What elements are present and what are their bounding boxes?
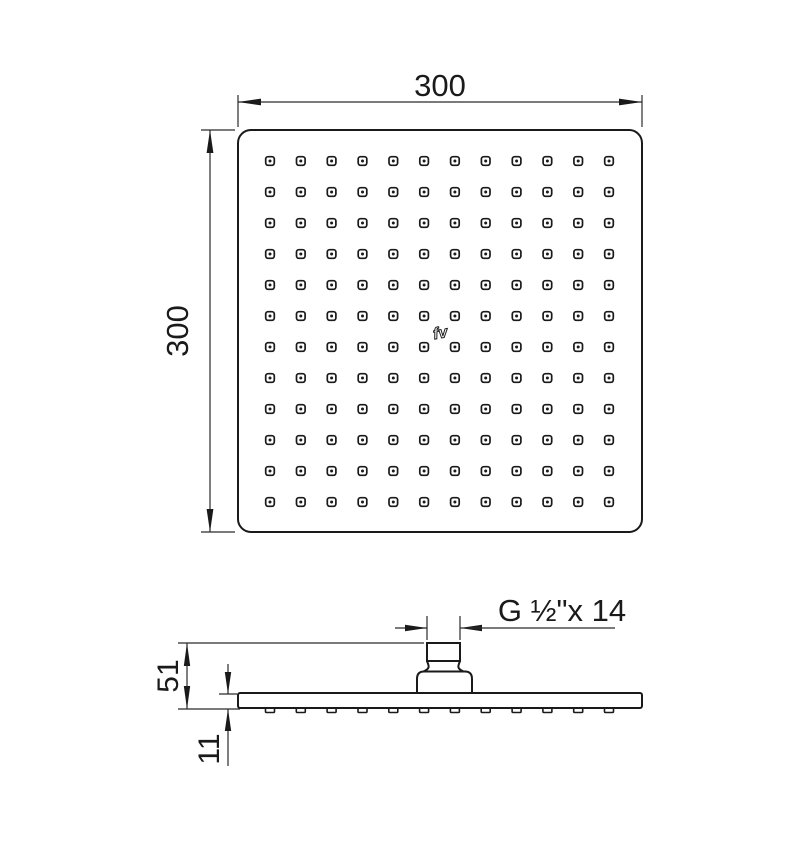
nozzle-dot	[299, 253, 302, 256]
nozzle-dot	[546, 346, 549, 349]
nozzle-dot	[423, 501, 426, 504]
nozzle-dot	[269, 253, 272, 256]
nozzle-dot	[608, 222, 611, 225]
nozzle-dot	[546, 160, 549, 163]
connector-neck-right	[458, 661, 463, 672]
nozzle-dot	[269, 160, 272, 163]
nozzle-dot	[269, 439, 272, 442]
nozzle-dot	[608, 160, 611, 163]
nozzle-dot	[330, 191, 333, 194]
nozzle-dot	[515, 315, 518, 318]
nozzle-dot	[515, 160, 518, 163]
nozzle-dot	[577, 222, 580, 225]
nozzle-dot	[484, 439, 487, 442]
nozzle-dot	[330, 377, 333, 380]
dimension-label-height: 300	[160, 305, 195, 357]
nozzle-dot	[453, 470, 456, 473]
nozzle-dot	[577, 501, 580, 504]
nozzle-dot	[453, 315, 456, 318]
nozzle-dot	[515, 470, 518, 473]
nozzle-dot	[269, 315, 272, 318]
thread-cylinder	[427, 643, 460, 661]
thread-connector	[417, 643, 472, 693]
nozzle-dot	[484, 284, 487, 287]
nozzle-dot	[392, 191, 395, 194]
nozzle-dot	[361, 315, 364, 318]
nozzle-dot	[330, 470, 333, 473]
dimension-thread: G ½"x 14	[395, 593, 626, 640]
nozzle-dot	[453, 501, 456, 504]
nozzle-dot	[453, 253, 456, 256]
nozzle-dot	[361, 222, 364, 225]
nozzle-dot	[361, 439, 364, 442]
nozzle-dot	[299, 284, 302, 287]
nozzle-dot	[577, 253, 580, 256]
nozzle-dot	[453, 408, 456, 411]
drawing-sheet: fv 300 300	[0, 0, 800, 848]
nozzle-dot	[546, 222, 549, 225]
dimension-label-thickness: 11	[193, 733, 226, 764]
nozzle-dot	[392, 346, 395, 349]
nozzle-dot	[269, 346, 272, 349]
nozzle-dot	[608, 377, 611, 380]
arrowhead-up	[225, 709, 231, 731]
nozzle-dot	[546, 315, 549, 318]
nozzle-dot	[299, 222, 302, 225]
nozzle-dot	[484, 501, 487, 504]
top-view: fv 300 300	[160, 68, 642, 532]
nozzle-dot	[515, 439, 518, 442]
nozzle-dot	[299, 408, 302, 411]
nozzle-dot	[269, 191, 272, 194]
nozzle-dot	[608, 470, 611, 473]
nozzle-dot	[392, 470, 395, 473]
nozzle-dot	[515, 222, 518, 225]
nozzle-dot	[577, 346, 580, 349]
nozzle-dot	[423, 470, 426, 473]
nozzle-dot	[546, 408, 549, 411]
nozzle-dot	[484, 253, 487, 256]
nozzle-dot	[453, 191, 456, 194]
dimension-label-overall-height: 51	[152, 659, 185, 692]
arrowhead-bottom	[207, 509, 214, 532]
nozzle-dot	[361, 284, 364, 287]
nozzle-dot	[608, 284, 611, 287]
dimension-plate-thickness: 11	[193, 664, 237, 766]
nozzle-dot	[392, 284, 395, 287]
nozzle-dot	[546, 191, 549, 194]
arrowhead-left	[238, 99, 261, 106]
nozzle-dot	[299, 346, 302, 349]
nozzle-dot	[330, 501, 333, 504]
nozzle-dot	[515, 501, 518, 504]
nozzle-dot	[392, 315, 395, 318]
nozzle-dot	[392, 253, 395, 256]
nozzle-dot	[453, 222, 456, 225]
nozzle-dot	[484, 408, 487, 411]
nozzle-dot	[484, 470, 487, 473]
side-view: G ½"x 14 51 11	[152, 593, 642, 766]
nozzle-dot	[361, 346, 364, 349]
nozzle-dot	[484, 160, 487, 163]
nozzle-dot	[546, 470, 549, 473]
nozzle-dot	[608, 346, 611, 349]
connector-base	[417, 672, 472, 694]
nozzle-dot	[361, 501, 364, 504]
arrowhead-down	[225, 672, 231, 694]
connector-neck-left	[424, 661, 429, 672]
nozzle-dot	[577, 439, 580, 442]
nozzle-dot	[423, 160, 426, 163]
nozzle-dot	[423, 439, 426, 442]
nozzle-dot	[423, 284, 426, 287]
nozzle-dot	[299, 470, 302, 473]
nozzle-dot	[608, 408, 611, 411]
nozzle-dot	[546, 253, 549, 256]
nozzle-dot	[515, 253, 518, 256]
nozzle-dot	[608, 439, 611, 442]
nozzle-dot	[269, 222, 272, 225]
nozzle-dot	[269, 408, 272, 411]
nozzle-dot	[453, 346, 456, 349]
brand-logo: fv	[432, 324, 450, 343]
nozzle-dot	[299, 160, 302, 163]
nozzle-dot	[330, 346, 333, 349]
nozzle-dot	[361, 377, 364, 380]
nozzle-dot	[361, 160, 364, 163]
nozzle-dot	[299, 501, 302, 504]
nozzle-dot	[546, 284, 549, 287]
nozzle-dot	[361, 470, 364, 473]
nozzle-dot	[330, 284, 333, 287]
thread-label: G ½"x 14	[498, 593, 626, 628]
arrowhead-top	[207, 130, 214, 153]
nozzle-dot	[299, 377, 302, 380]
arrowhead-right	[619, 99, 642, 106]
nozzle-dot	[515, 191, 518, 194]
nozzle-dot	[392, 408, 395, 411]
nozzle-dot	[392, 377, 395, 380]
nozzle-dot	[453, 377, 456, 380]
nozzle-dot	[361, 253, 364, 256]
nozzle-dot	[484, 377, 487, 380]
nozzle-dot	[330, 222, 333, 225]
nozzle-dot	[423, 315, 426, 318]
nozzle-dot	[515, 284, 518, 287]
nozzle-dot	[423, 253, 426, 256]
nozzle-dot	[453, 439, 456, 442]
nozzle-dot	[453, 284, 456, 287]
nozzle-dot	[577, 377, 580, 380]
nozzle-dot	[577, 160, 580, 163]
nozzle-dot	[515, 346, 518, 349]
nozzle-dot	[361, 408, 364, 411]
nozzle-dot	[423, 408, 426, 411]
nozzle-dot	[577, 470, 580, 473]
nozzle-dot	[330, 253, 333, 256]
nozzle-dot	[330, 408, 333, 411]
nozzle-dot	[515, 408, 518, 411]
nozzle-dot	[299, 315, 302, 318]
nozzle-dot	[423, 222, 426, 225]
plate-profile	[238, 693, 642, 708]
nozzle-dot	[330, 439, 333, 442]
nozzle-dot	[299, 439, 302, 442]
nozzle-dot	[361, 191, 364, 194]
nozzle-dot	[453, 160, 456, 163]
nozzle-dot	[330, 160, 333, 163]
nozzle-dot	[423, 346, 426, 349]
nozzle-dot	[269, 284, 272, 287]
nozzle-dot	[392, 501, 395, 504]
dimension-label-width: 300	[414, 68, 466, 103]
nozzle-dot	[269, 470, 272, 473]
nozzle-dot	[515, 377, 518, 380]
nozzle-dot	[392, 439, 395, 442]
nozzle-dot	[577, 191, 580, 194]
nozzle-dot	[423, 191, 426, 194]
nozzle-dot	[608, 191, 611, 194]
nozzle-dot	[577, 315, 580, 318]
nozzle-dot	[484, 222, 487, 225]
nozzle-dot	[608, 253, 611, 256]
technical-drawing: fv 300 300	[0, 0, 800, 848]
nozzle-dot	[546, 439, 549, 442]
dimension-top-width: 300	[238, 68, 642, 127]
nozzle-dot	[484, 346, 487, 349]
nozzle-dot	[577, 284, 580, 287]
nozzle-dot	[299, 191, 302, 194]
nozzle-dot	[484, 315, 487, 318]
nozzle-dot	[546, 377, 549, 380]
nozzle-dot	[330, 315, 333, 318]
dimension-left-height: 300	[160, 130, 235, 532]
nozzle-dot	[392, 222, 395, 225]
nozzle-dot	[608, 501, 611, 504]
nozzle-dot	[392, 160, 395, 163]
nozzle-dot	[546, 501, 549, 504]
nozzle-dot	[608, 315, 611, 318]
nozzle-dot	[269, 501, 272, 504]
nozzle-dot	[577, 408, 580, 411]
arrowhead-left	[405, 625, 427, 631]
nozzle-dot	[269, 377, 272, 380]
nozzle-dot	[423, 377, 426, 380]
nozzle-dot	[484, 191, 487, 194]
